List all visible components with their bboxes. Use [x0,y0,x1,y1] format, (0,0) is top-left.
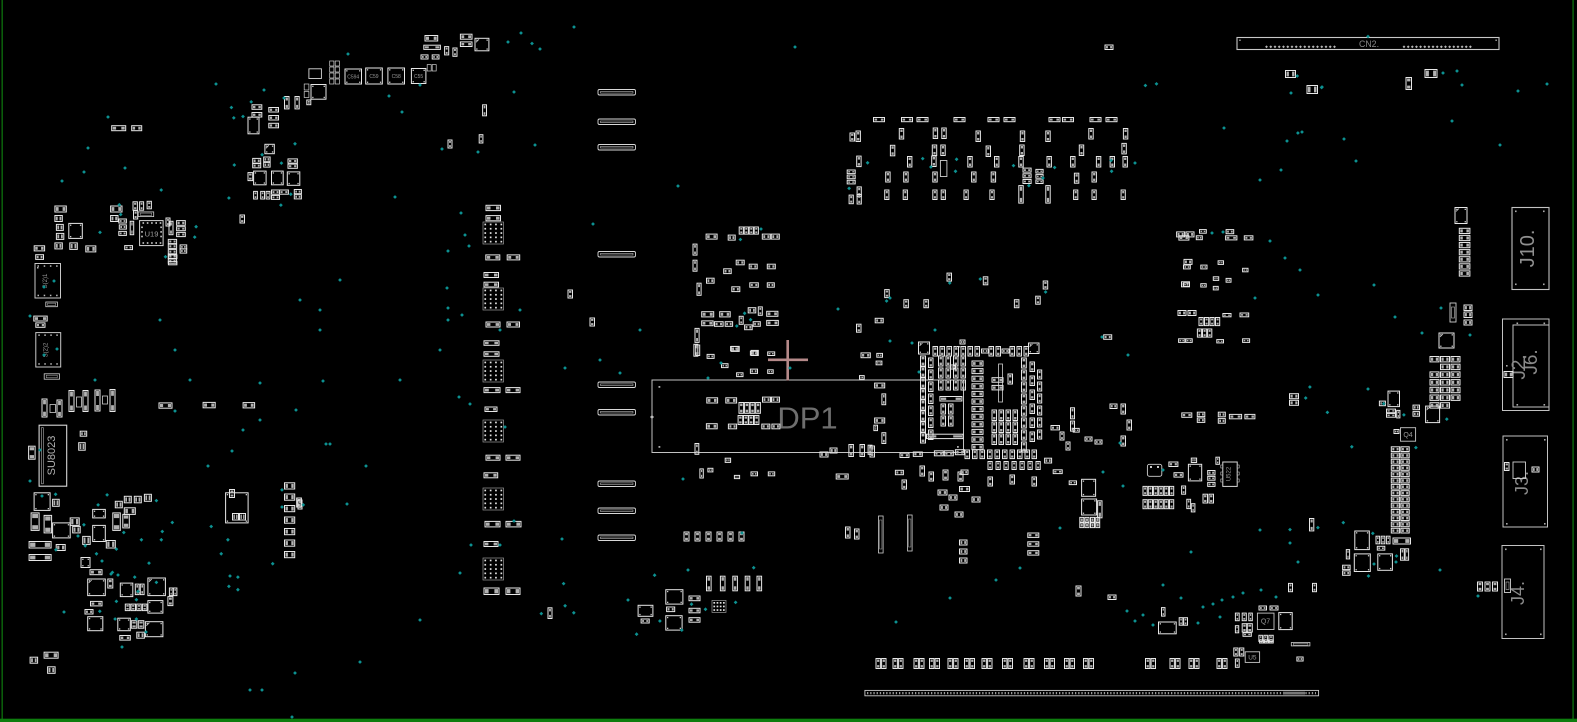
svg-text:Q7: Q7 [1261,619,1270,626]
svg-text:C55: C55 [414,74,423,80]
svg-text:C59: C59 [369,74,378,80]
svg-text:U19: U19 [145,230,159,239]
svg-text:U5: U5 [1248,655,1257,662]
svg-text:Q4: Q4 [1403,432,1412,439]
svg-text:J6.: J6. [1521,349,1542,374]
svg-text:SU8023: SU8023 [46,436,58,476]
svg-text:DP1: DP1 [777,401,837,436]
svg-text:J4.: J4. [1508,581,1528,605]
svg-text:CN2.: CN2. [1359,39,1379,49]
svg-text:C594: C594 [347,75,359,81]
svg-text:J10.: J10. [1517,230,1539,268]
svg-text:J3.: J3. [1512,471,1532,495]
svg-text:C58: C58 [392,74,401,80]
svg-text:U522: U522 [1227,466,1233,481]
